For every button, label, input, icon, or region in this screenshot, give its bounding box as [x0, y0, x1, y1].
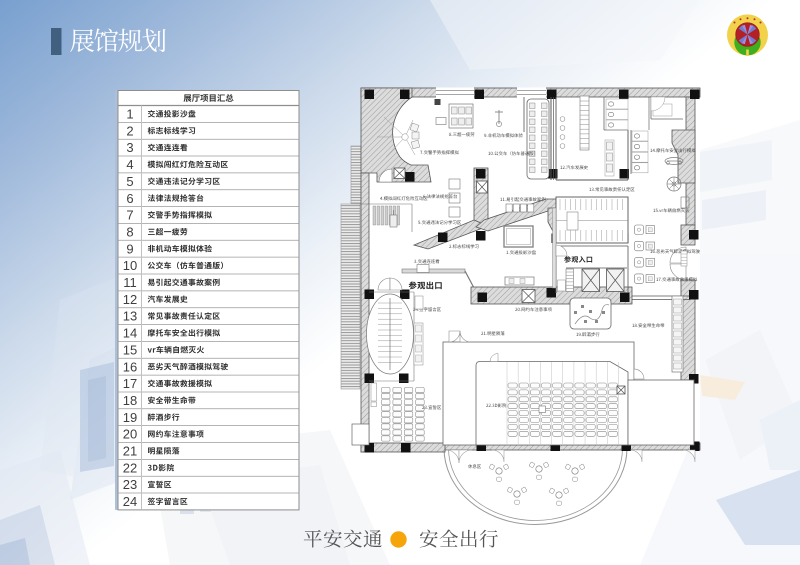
svg-text:1: 1	[126, 107, 133, 122]
svg-text:6: 6	[126, 191, 133, 206]
svg-text:15: 15	[123, 342, 137, 357]
svg-text:3: 3	[126, 140, 133, 155]
svg-text:24: 24	[123, 494, 137, 509]
svg-text:4: 4	[126, 157, 133, 172]
svg-text:23: 23	[123, 477, 137, 492]
svg-text:21: 21	[123, 444, 137, 459]
svg-text:5: 5	[126, 174, 133, 189]
svg-text:13: 13	[123, 309, 137, 324]
svg-text:12: 12	[123, 292, 137, 307]
svg-text:2: 2	[126, 123, 133, 138]
svg-text:22: 22	[123, 460, 137, 475]
svg-text:18: 18	[123, 393, 137, 408]
svg-text:7: 7	[126, 208, 133, 223]
svg-text:20: 20	[123, 427, 137, 442]
svg-text:19: 19	[123, 410, 137, 425]
svg-text:10: 10	[123, 258, 137, 273]
svg-text:14: 14	[123, 326, 137, 341]
svg-text:17: 17	[123, 376, 137, 391]
svg-text:16: 16	[123, 359, 137, 374]
svg-text:11: 11	[123, 275, 137, 290]
svg-text:8: 8	[126, 224, 133, 239]
svg-text:9: 9	[126, 241, 133, 256]
